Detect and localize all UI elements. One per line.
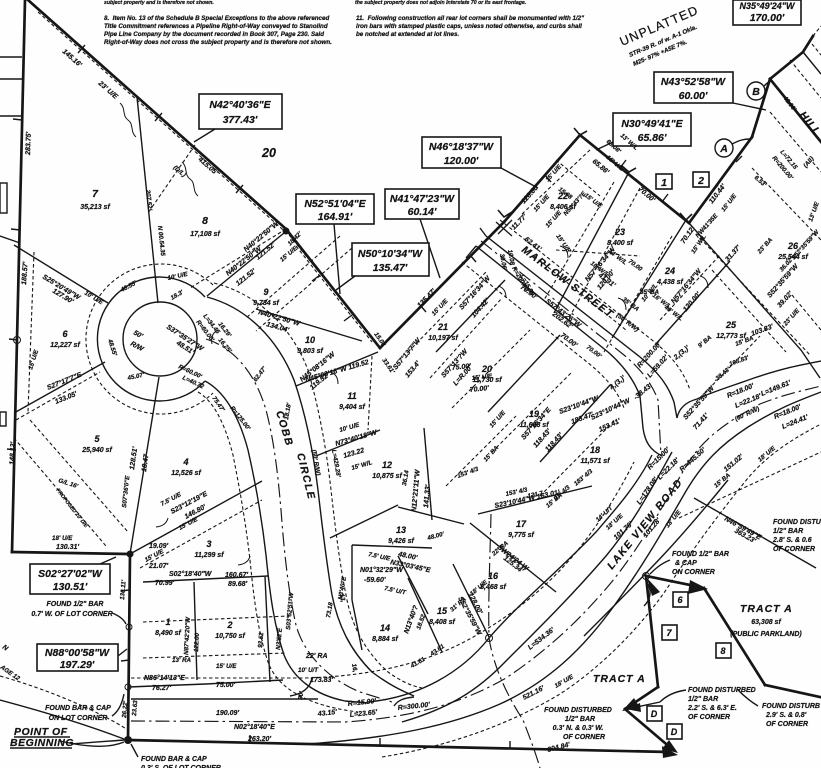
svg-text:the subject property does not: the subject property does not adjoin Int… xyxy=(355,0,526,6)
svg-text:9,404 sf: 9,404 sf xyxy=(339,404,365,411)
svg-text:10' U/T: 10' U/T xyxy=(298,667,319,674)
svg-text:122.00: 122.00 xyxy=(193,632,201,652)
svg-text:17: 17 xyxy=(516,519,527,529)
svg-text:1/2" BAR: 1/2" BAR xyxy=(688,696,718,703)
svg-text:164.91': 164.91' xyxy=(318,211,353,223)
svg-text:76.27': 76.27' xyxy=(152,685,172,692)
svg-text:2: 2 xyxy=(697,175,704,187)
svg-text:TRACT A: TRACT A xyxy=(593,673,646,685)
svg-text:63,308 sf: 63,308 sf xyxy=(751,619,781,626)
svg-text:12,526 sf: 12,526 sf xyxy=(171,470,201,477)
svg-text:D: D xyxy=(651,709,658,719)
svg-text:FOUND DISTURBED: FOUND DISTURBED xyxy=(544,707,612,714)
svg-text:130.31': 130.31' xyxy=(56,544,79,551)
svg-text:2.2' S. & 6.3' E.: 2.2' S. & 6.3' E. xyxy=(687,705,737,712)
svg-text:60.00': 60.00' xyxy=(679,90,708,102)
svg-text:FOUND 1/2" BAR: FOUND 1/2" BAR xyxy=(47,601,104,608)
svg-text:8,408 sf: 8,408 sf xyxy=(429,619,455,626)
svg-text:8: 8 xyxy=(720,646,725,656)
svg-text:FOUND 1/2" BAR: FOUND 1/2" BAR xyxy=(672,551,729,558)
svg-text:15: 15 xyxy=(437,606,448,616)
svg-text:18' U/E: 18' U/E xyxy=(52,535,73,542)
svg-text:N46°18'37"W: N46°18'37"W xyxy=(429,141,494,153)
svg-text:be notched at extended at lot: be notched at extended at lot lines. xyxy=(356,31,459,38)
svg-text:FOUND DISTURB: FOUND DISTURB xyxy=(762,703,820,710)
svg-text:N41°47'23"W: N41°47'23"W xyxy=(390,193,455,205)
svg-text:FOUND BAR & CAP: FOUND BAR & CAP xyxy=(45,705,111,712)
svg-text:ON CORNER: ON CORNER xyxy=(672,569,715,576)
svg-text:B: B xyxy=(752,86,760,98)
svg-text:25,940 sf: 25,940 sf xyxy=(81,447,112,454)
svg-text:S02°18'40"W: S02°18'40"W xyxy=(169,570,213,578)
svg-text:A: A xyxy=(719,143,728,155)
svg-text:190.09': 190.09' xyxy=(216,710,239,717)
svg-text:iron bars with stamped plastic: iron bars with stamped plastic caps, unl… xyxy=(356,23,582,30)
svg-text:283.75': 283.75' xyxy=(25,131,33,156)
svg-text:2: 2 xyxy=(226,620,232,630)
svg-text:65.86': 65.86' xyxy=(638,132,667,144)
svg-text:N52°51'04"E: N52°51'04"E xyxy=(304,198,366,210)
svg-text:N30°49'41"E: N30°49'41"E xyxy=(621,118,683,130)
svg-text:35,213 sf: 35,213 sf xyxy=(80,204,110,211)
svg-text:22' RA: 22' RA xyxy=(305,653,328,660)
svg-text:8. Item No. 13 of the Schedul: 8. Item No. 13 of the Schedule B Special… xyxy=(104,15,329,22)
svg-text:OF CORNER: OF CORNER xyxy=(773,546,815,553)
svg-text:10,197 sf: 10,197 sf xyxy=(428,335,458,342)
svg-text:24: 24 xyxy=(664,266,675,276)
svg-text:0.3' N. & 0.3' W.: 0.3' N. & 0.3' W. xyxy=(553,725,604,732)
svg-text:16: 16 xyxy=(488,571,499,581)
svg-text:12,227 sf: 12,227 sf xyxy=(50,342,80,349)
svg-text:18: 18 xyxy=(590,445,600,455)
svg-text:N50°10'34"W: N50°10'34"W xyxy=(358,248,423,260)
svg-text:N42°40'36"E: N42°40'36"E xyxy=(209,99,271,111)
svg-text:11,571 sf: 11,571 sf xyxy=(580,458,610,465)
svg-text:4,438 sf: 4,438 sf xyxy=(656,279,683,286)
svg-text:21.07': 21.07' xyxy=(148,563,169,570)
svg-text:3: 3 xyxy=(206,539,211,549)
svg-text:10,750 sf: 10,750 sf xyxy=(215,633,245,640)
svg-text:9,803 sf: 9,803 sf xyxy=(297,348,323,355)
svg-text:21: 21 xyxy=(437,322,448,332)
svg-text:13: 13 xyxy=(396,525,406,535)
svg-text:11,299 sf: 11,299 sf xyxy=(194,552,224,559)
svg-text:FOUND BAR & CAP: FOUND BAR & CAP xyxy=(141,756,207,763)
svg-text:& CAP: & CAP xyxy=(675,560,697,567)
svg-text:8,490 sf: 8,490 sf xyxy=(155,630,181,637)
svg-text:263.20': 263.20' xyxy=(247,736,271,743)
svg-text:12: 12 xyxy=(382,460,392,470)
svg-text:13' RA: 13' RA xyxy=(172,657,192,664)
svg-text:2.9' S. & 0.8': 2.9' S. & 0.8' xyxy=(765,712,807,719)
svg-text:2.8' S. & 0.6: 2.8' S. & 0.6 xyxy=(772,537,812,544)
svg-text:75.00': 75.00' xyxy=(216,682,236,689)
svg-text:14: 14 xyxy=(380,623,390,633)
svg-text:D: D xyxy=(671,727,678,737)
svg-text:70.99': 70.99' xyxy=(155,580,175,587)
svg-text:1/2" BAR: 1/2" BAR xyxy=(773,528,803,535)
svg-text:25: 25 xyxy=(725,320,737,330)
svg-text:89.68': 89.68' xyxy=(228,581,248,588)
svg-text:N02°18'40"E: N02°18'40"E xyxy=(234,723,275,731)
svg-text:9,426 sf: 9,426 sf xyxy=(388,538,414,545)
svg-text:4: 4 xyxy=(182,457,188,467)
svg-text:20: 20 xyxy=(261,146,276,160)
svg-text:1: 1 xyxy=(165,617,170,627)
svg-text:173.83': 173.83' xyxy=(310,677,333,684)
svg-text:(PUBLIC PARKLAND): (PUBLIC PARKLAND) xyxy=(730,631,802,638)
svg-text:11. Following construction al: 11. Following construction all rear lot … xyxy=(356,15,584,22)
svg-text:130.51': 130.51' xyxy=(53,581,88,593)
svg-text:FOUND DISTURBED: FOUND DISTURBED xyxy=(688,687,756,694)
svg-text:60.14': 60.14' xyxy=(408,206,437,218)
svg-text:-59.60': -59.60' xyxy=(364,577,386,584)
svg-text:1/2" BAR: 1/2" BAR xyxy=(565,716,595,723)
svg-text:BEGINNING: BEGINNING xyxy=(10,737,74,749)
svg-text:160.67': 160.67' xyxy=(225,572,248,579)
svg-text:N88°00'58"W: N88°00'58"W xyxy=(45,647,110,659)
svg-text:Title Commitment references a: Title Commitment references a Pipeline R… xyxy=(104,23,328,30)
svg-text:11: 11 xyxy=(347,391,356,401)
svg-text:Right-of-Way does not cross th: Right-of-Way does not cross the subject … xyxy=(104,39,332,46)
svg-text:Pipe Line Company by the docum: Pipe Line Company by the document record… xyxy=(104,31,324,38)
svg-text:1: 1 xyxy=(661,177,667,189)
svg-text:9,775 sf: 9,775 sf xyxy=(508,532,534,539)
svg-text:23: 23 xyxy=(614,227,625,237)
svg-text:TRACT A: TRACT A xyxy=(740,603,793,615)
svg-text:15' U/E: 15' U/E xyxy=(216,663,237,670)
svg-text:0.7' W. OF LOT CORNER: 0.7' W. OF LOT CORNER xyxy=(31,611,112,618)
svg-text:FOUND DISTU: FOUND DISTU xyxy=(773,519,821,526)
svg-text:197.29': 197.29' xyxy=(60,659,95,671)
svg-text:10,875 sf: 10,875 sf xyxy=(372,473,402,480)
svg-text:10: 10 xyxy=(305,335,315,345)
svg-text:OF CORNER: OF CORNER xyxy=(563,734,605,741)
svg-text:148.12': 148.12' xyxy=(9,441,17,465)
svg-text:93.52: 93.52 xyxy=(257,632,265,649)
svg-text:17,108 sf: 17,108 sf xyxy=(190,231,220,238)
svg-text:subject property and is theref: subject property and is therefore not sh… xyxy=(104,0,214,6)
svg-text:OF CORNER: OF CORNER xyxy=(766,721,808,728)
svg-text:ON LOT CORNER: ON LOT CORNER xyxy=(49,715,108,722)
svg-text:377.43': 377.43' xyxy=(223,114,258,126)
svg-text:S02°27'02"W: S02°27'02"W xyxy=(38,568,103,580)
svg-text:N35°49'24"W: N35°49'24"W xyxy=(739,1,796,11)
svg-text:8,884 sf: 8,884 sf xyxy=(372,636,398,643)
svg-text:N86°14'13"E: N86°14'13"E xyxy=(144,674,185,682)
svg-text:120.00': 120.00' xyxy=(444,155,479,167)
svg-text:9,784 sf: 9,784 sf xyxy=(253,300,279,307)
svg-text:OF CORNER: OF CORNER xyxy=(688,714,730,721)
svg-text:N43°52'58"W: N43°52'58"W xyxy=(661,76,726,88)
svg-text:8: 8 xyxy=(202,215,208,227)
svg-text:9: 9 xyxy=(263,287,268,297)
svg-text:170.00': 170.00' xyxy=(750,12,785,24)
svg-text:135.47': 135.47' xyxy=(373,262,408,274)
svg-text:23.63: 23.63 xyxy=(131,700,139,718)
